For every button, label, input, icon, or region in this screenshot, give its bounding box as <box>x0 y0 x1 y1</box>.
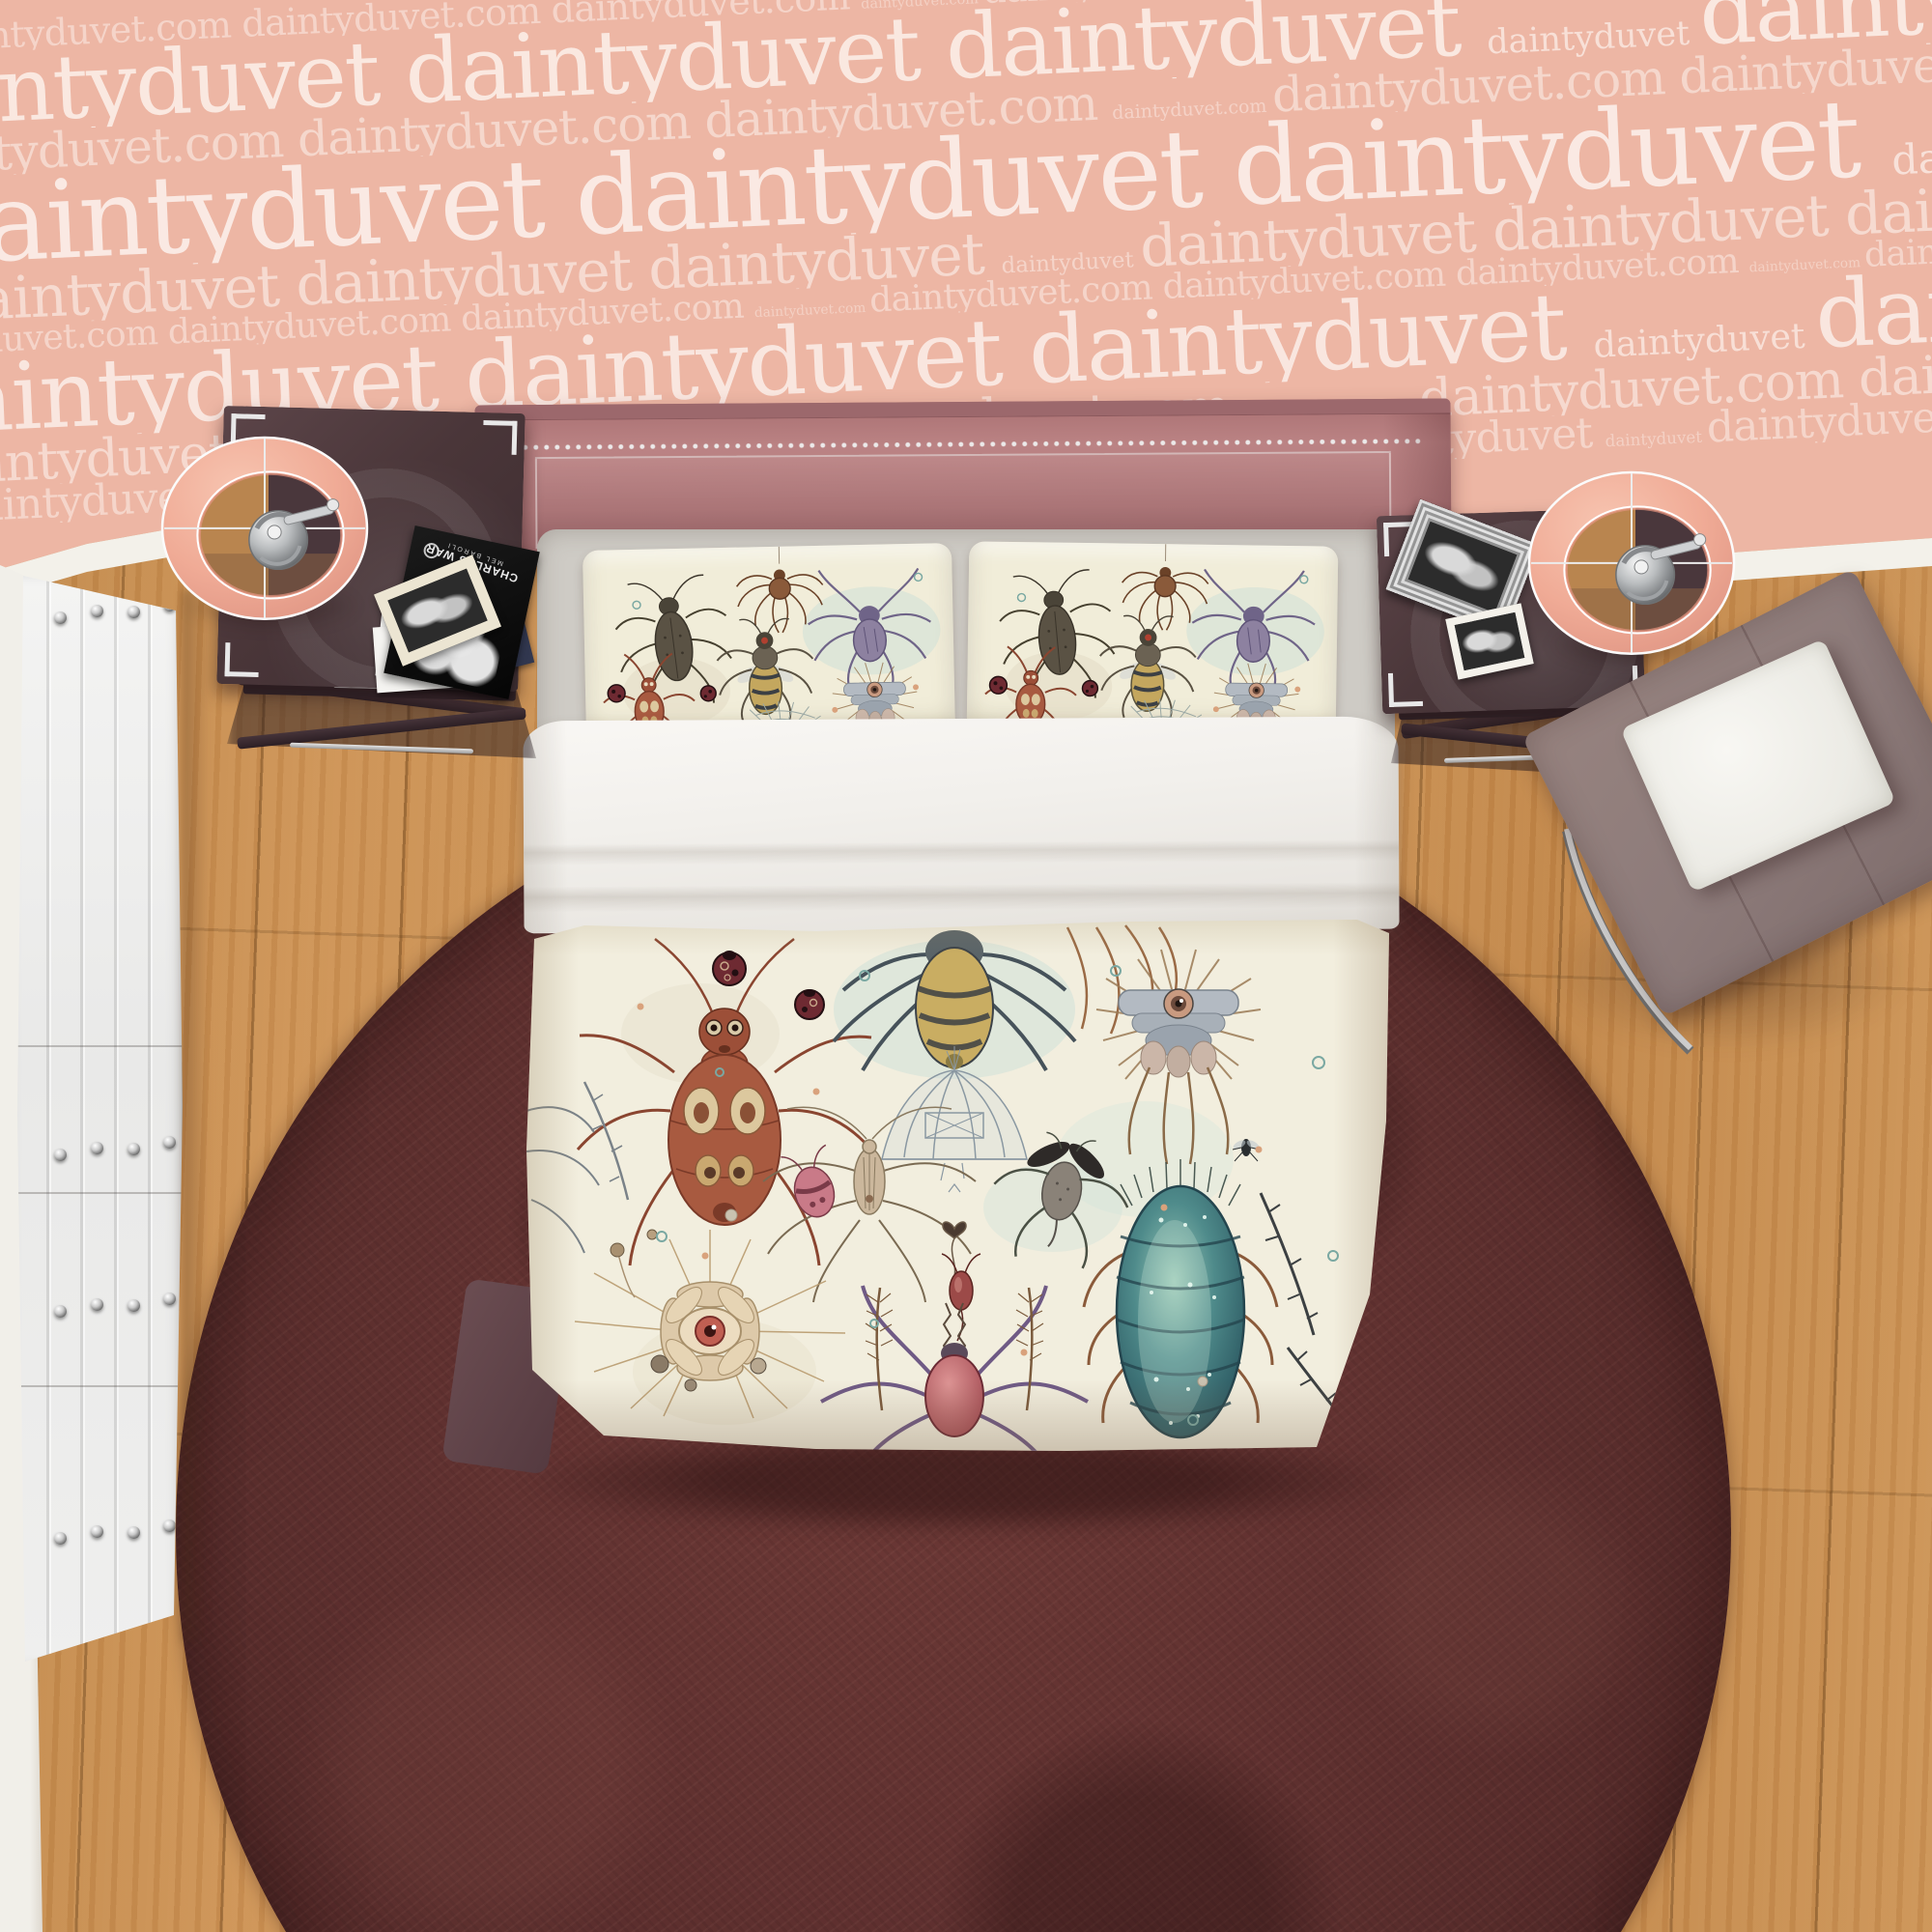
pillow-art <box>967 541 1339 737</box>
pillow-art <box>582 543 955 742</box>
wasp-illustration <box>1099 615 1196 719</box>
bedroom-scene: daintyduvet.com daintyduvet.com daintydu… <box>0 0 1932 1932</box>
chrome-corner <box>224 642 259 677</box>
white-wardrobe-top <box>17 574 185 1667</box>
cabinet-knob <box>128 1526 140 1539</box>
sheet-folds <box>523 717 1399 934</box>
duvet-shading <box>526 918 1394 1455</box>
table-lamp-left <box>159 435 370 630</box>
bw-photo <box>1455 612 1525 670</box>
cabinet-shadow <box>182 589 209 1642</box>
pillow-right <box>967 541 1339 737</box>
lamp-top-view <box>159 435 370 630</box>
cabinet-knob <box>54 1305 67 1318</box>
ladybug-illustration <box>1082 681 1097 696</box>
ladybug-illustration <box>989 676 1007 694</box>
cabinet-seam <box>17 1045 185 1047</box>
cabinet-knob <box>54 611 67 624</box>
chrome-corner <box>483 420 518 455</box>
cabinet-knob <box>91 1298 103 1311</box>
pillow-insect-print <box>582 543 955 742</box>
cabinet-knob <box>128 606 140 618</box>
cabinet-knob <box>54 1149 67 1161</box>
cabinet-knob <box>91 1525 103 1538</box>
cabinet-knob <box>163 1293 176 1305</box>
wasp-illustration <box>717 618 814 722</box>
cabinet-knob <box>54 1532 67 1545</box>
chrome-corner <box>1388 672 1423 707</box>
cabinet-seam <box>17 1385 185 1387</box>
cabinet-knob <box>163 1520 176 1532</box>
cabinet-seam <box>17 1192 185 1194</box>
duvet-cover <box>526 918 1394 1455</box>
cabinet-knob <box>128 1299 140 1312</box>
lounge-chair <box>1546 609 1932 1111</box>
headboard-nailhead-trim <box>500 438 1426 453</box>
pillow-insect-print <box>967 541 1339 737</box>
cabinet-knob <box>128 1143 140 1155</box>
cabinet-knob <box>163 1136 176 1149</box>
bw-photo <box>1408 522 1518 612</box>
ladybug-illustration <box>608 685 625 702</box>
cabinet-knob <box>91 605 103 617</box>
folded-white-sheet <box>523 717 1399 934</box>
cabinet-knob <box>91 1142 103 1154</box>
ladybug-illustration <box>700 686 716 701</box>
pillow-left <box>582 543 955 742</box>
